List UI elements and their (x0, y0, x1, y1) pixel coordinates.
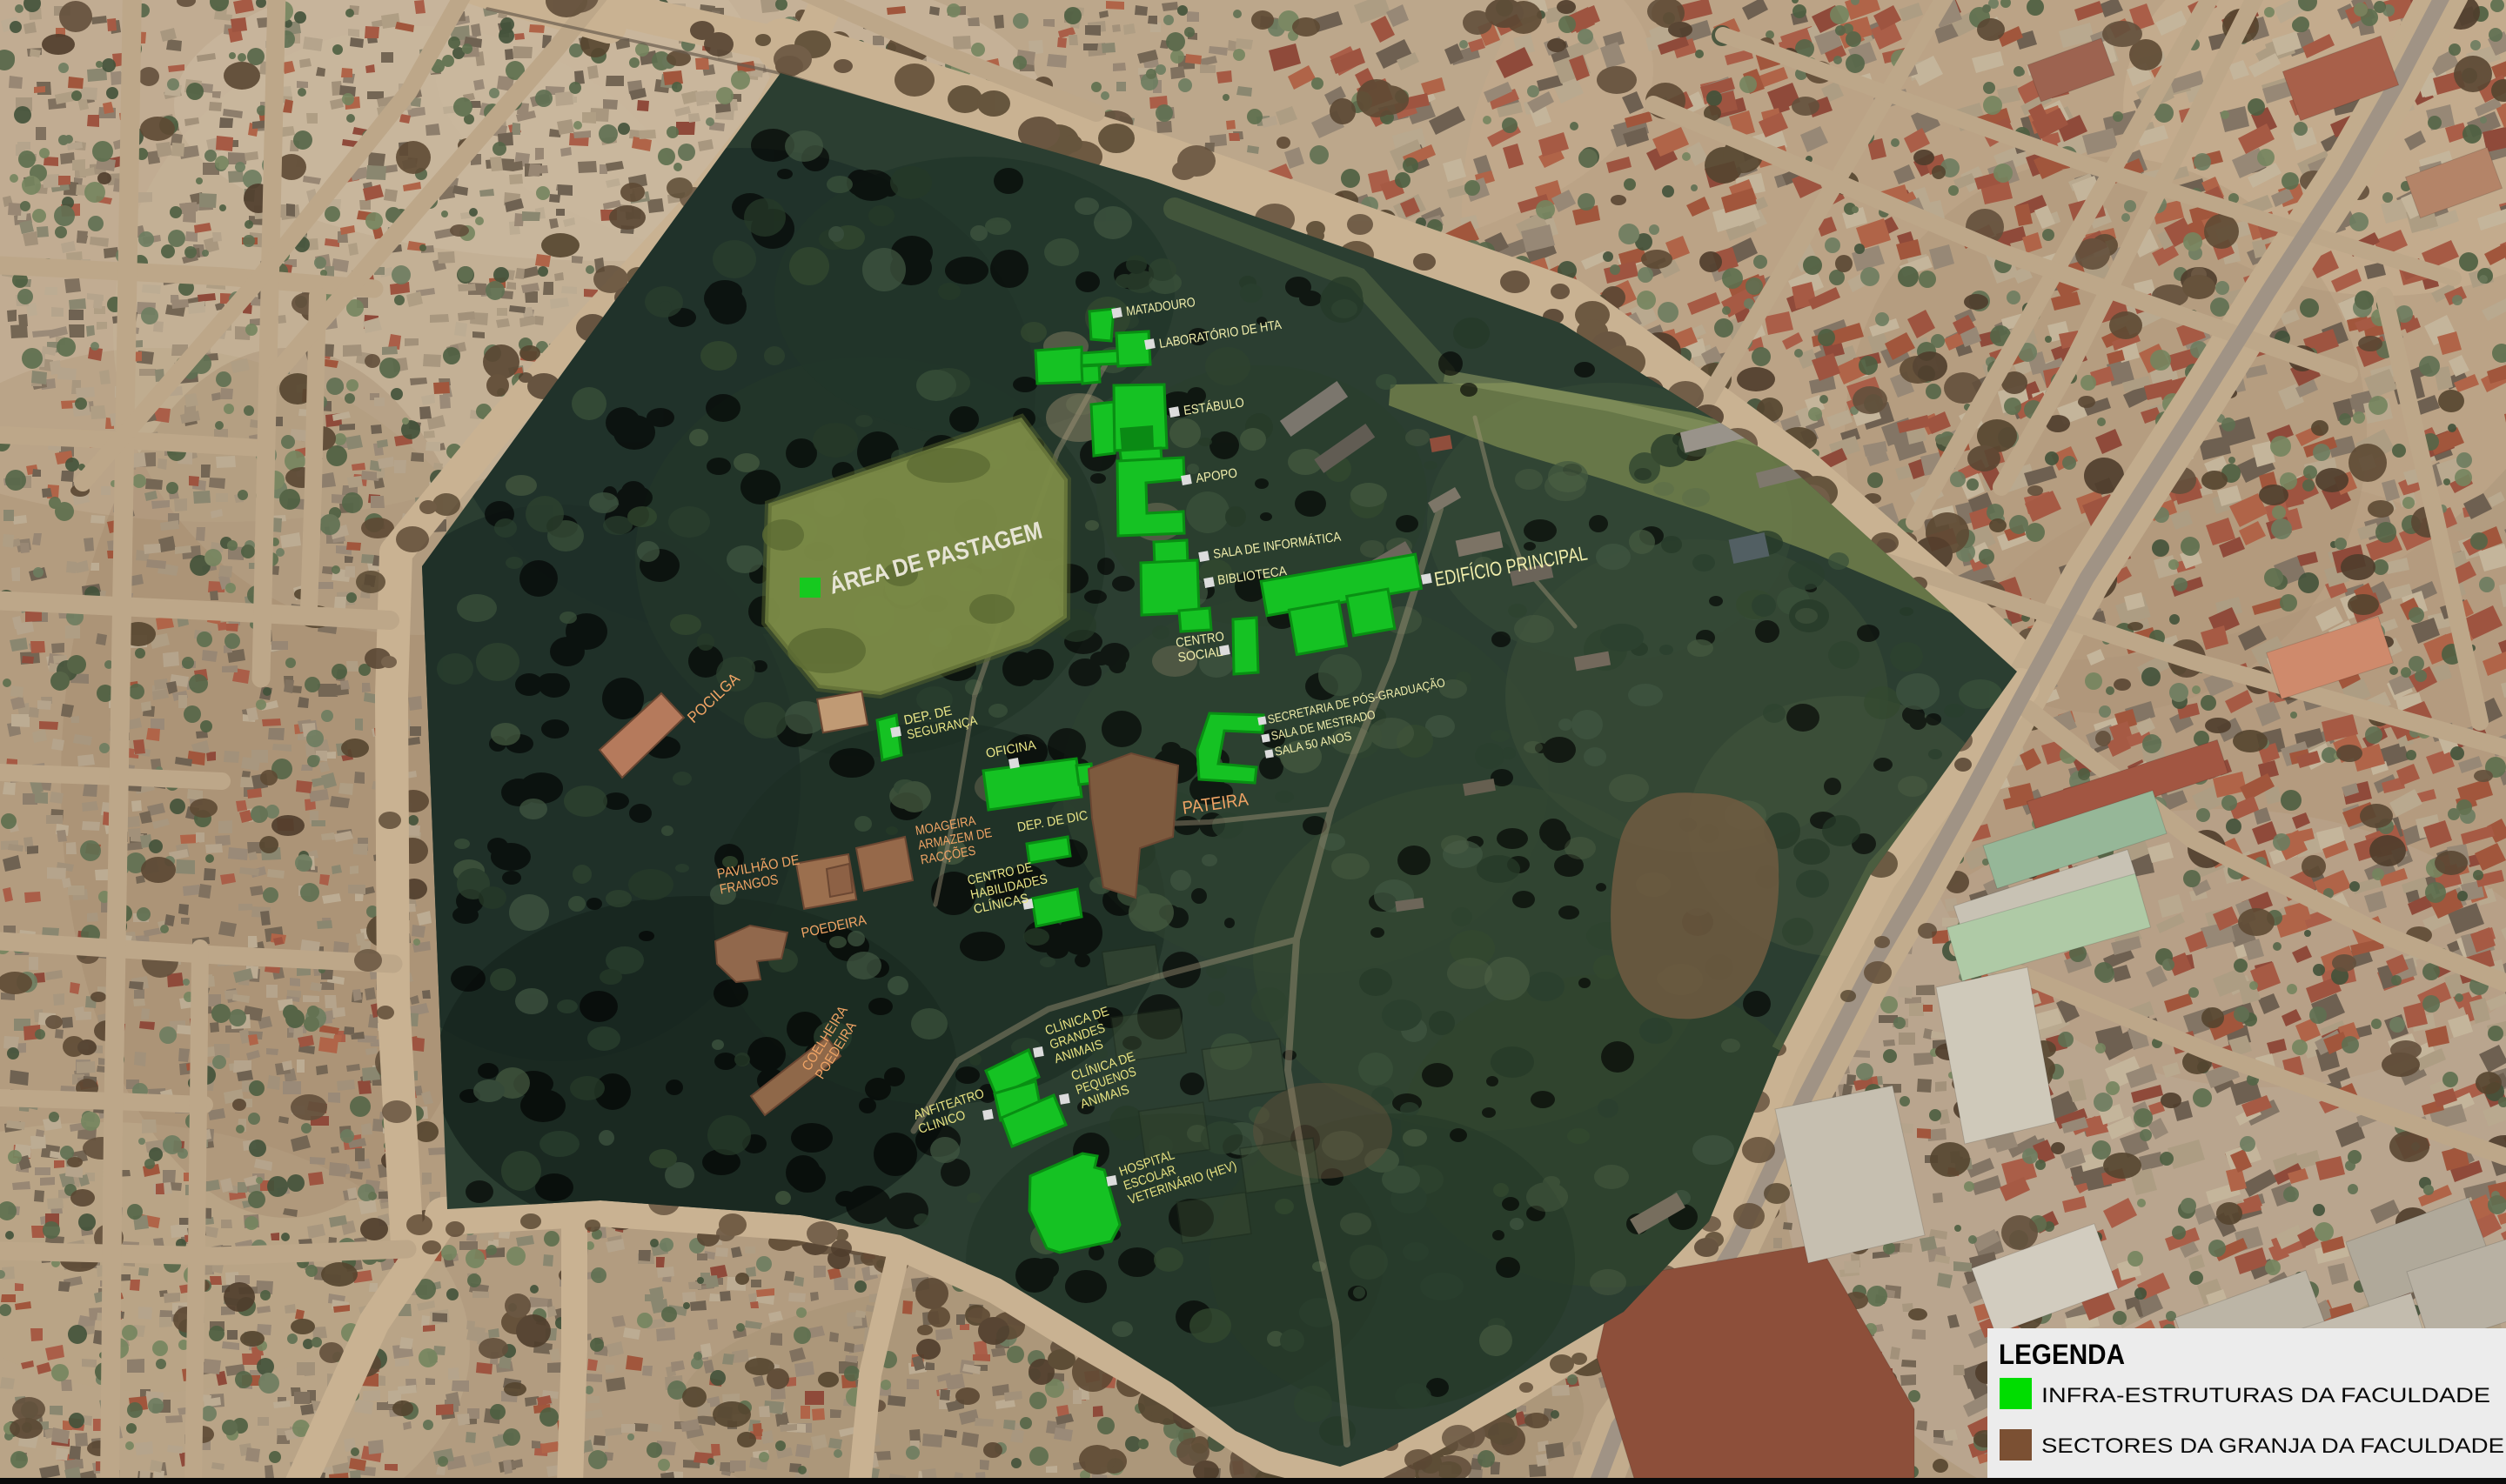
svg-text:INFRA-ESTRUTURAS DA FACULDADE: INFRA-ESTRUTURAS DA FACULDADE (2041, 1384, 2490, 1407)
svg-text:LEGENDA: LEGENDA (1999, 1339, 2125, 1370)
svg-text:SECTORES DA GRANJA DA FACULDAD: SECTORES DA GRANJA DA FACULDADE (2041, 1434, 2504, 1458)
